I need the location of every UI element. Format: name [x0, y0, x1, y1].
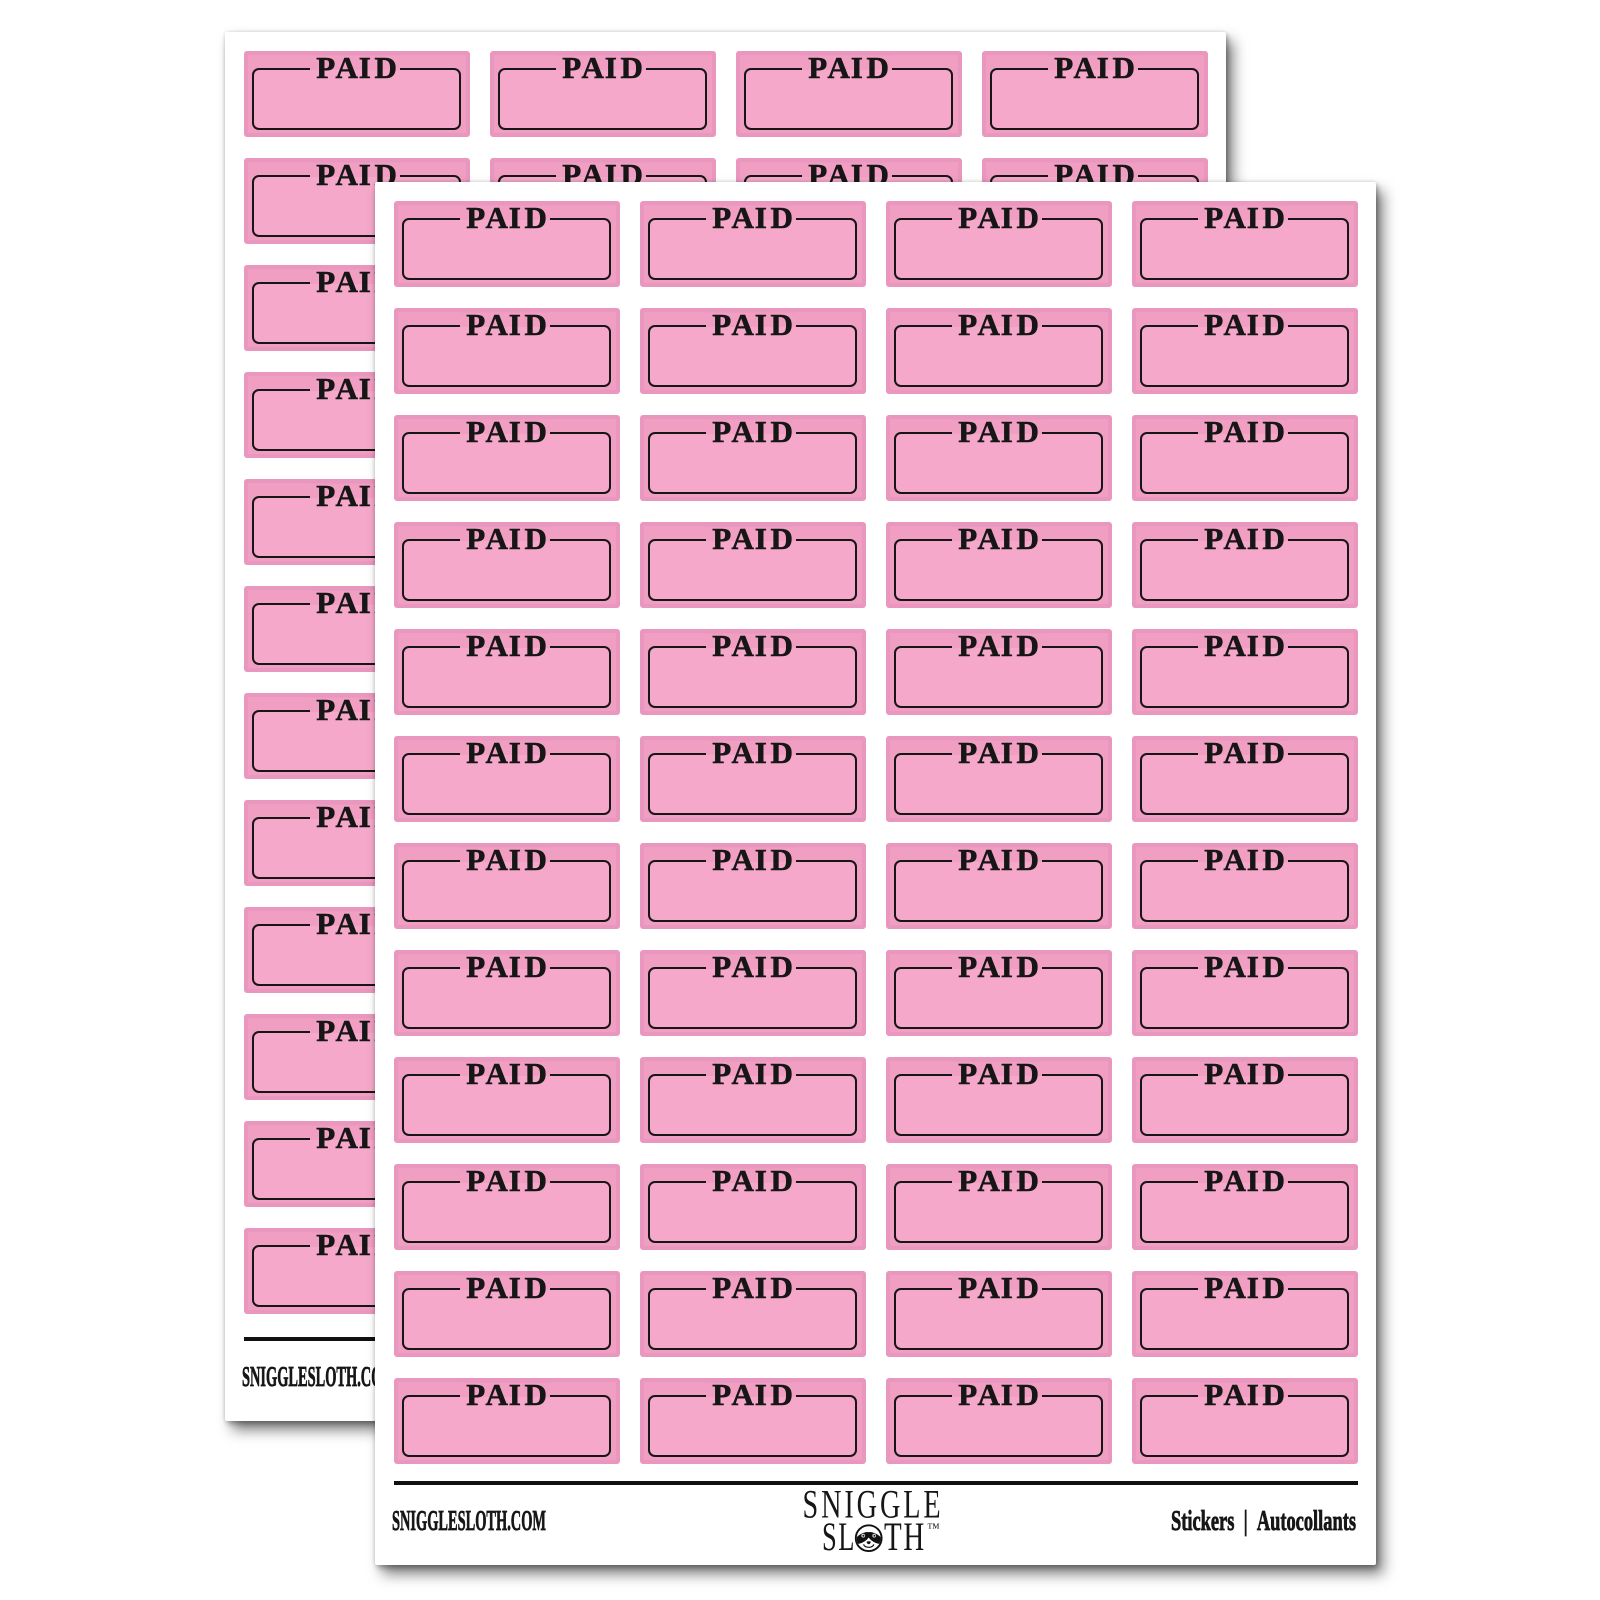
svg-text:™: ™	[927, 1520, 940, 1535]
svg-text:SNIGGLESLOTH.COM: SNIGGLESLOTH.COM	[242, 1361, 396, 1393]
svg-text:SNIGGLESLOTH.COM: SNIGGLESLOTH.COM	[392, 1505, 546, 1537]
svg-text:TH: TH	[884, 1515, 926, 1559]
svg-text:Stickers | Autocollants: Stickers | Autocollants	[1171, 1506, 1356, 1537]
svg-text:SL: SL	[822, 1515, 856, 1559]
